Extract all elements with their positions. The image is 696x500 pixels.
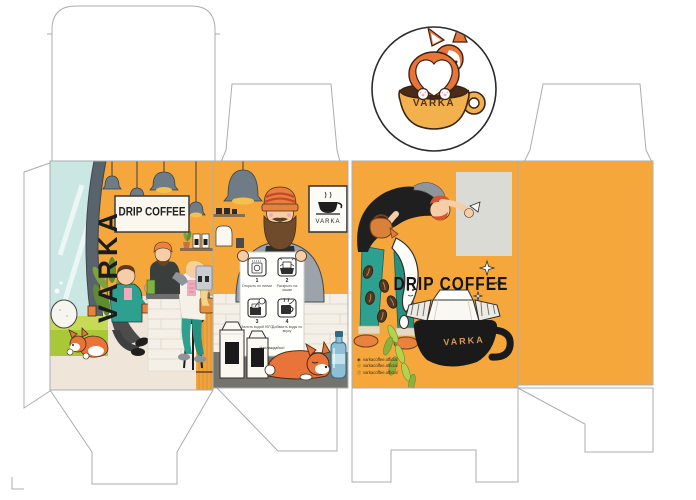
social-handle: varkacoffee.official bbox=[363, 357, 398, 362]
panel-side-plain bbox=[518, 161, 653, 385]
bottom-flap-4 bbox=[518, 388, 653, 452]
sticker-brand-text: VARKA bbox=[407, 98, 461, 109]
top-flap-4 bbox=[524, 84, 652, 162]
social-row: ⓕvarkacoffee.official bbox=[357, 370, 398, 376]
bottom-flap-3 bbox=[352, 388, 518, 482]
sheet-footer: Наслаждайся! bbox=[240, 346, 304, 350]
poster-brand-text: VARKA bbox=[309, 219, 347, 225]
top-lid-flap bbox=[52, 6, 215, 162]
varka-poster bbox=[309, 186, 347, 232]
instruction-sheet-text: 1 Открыть по линии 2 Раскрыть на чашке 3… bbox=[240, 252, 304, 356]
bottom-flap-2 bbox=[217, 388, 337, 451]
left-glue-flap bbox=[24, 163, 50, 408]
beanbag bbox=[51, 300, 77, 328]
kettle bbox=[370, 218, 392, 238]
brand-sticker bbox=[372, 24, 496, 151]
wall-brand-vertical: VARKA bbox=[93, 209, 124, 323]
step-caption: Раскрыть на чашке bbox=[271, 284, 303, 292]
front-title: DRIP COFFEE bbox=[392, 274, 510, 296]
packaging-dieline: VARKA DRIP COFFEE VARKA 1 Открыть по лин… bbox=[0, 0, 696, 500]
bottom-flap-1 bbox=[50, 390, 213, 484]
top-flap-2 bbox=[221, 84, 340, 162]
step-caption: Открыть по линии bbox=[241, 284, 273, 288]
social-handle: varkacoffee.official bbox=[363, 363, 398, 368]
step-caption: Добавить воды по вкусу bbox=[271, 325, 303, 333]
signboard-text: DRIP COFFEE bbox=[116, 206, 188, 219]
coffee-grinder bbox=[147, 280, 155, 294]
social-handles: ◉varkacoffee.official ⓥvarkacoffee.offic… bbox=[357, 357, 398, 376]
panel-cafe-art bbox=[50, 161, 213, 390]
crop-mark bbox=[12, 477, 24, 489]
step-caption: Залить водой 95°С bbox=[241, 325, 273, 329]
milk-jug bbox=[216, 226, 232, 246]
social-handle: varkacoffee.official bbox=[363, 370, 398, 375]
